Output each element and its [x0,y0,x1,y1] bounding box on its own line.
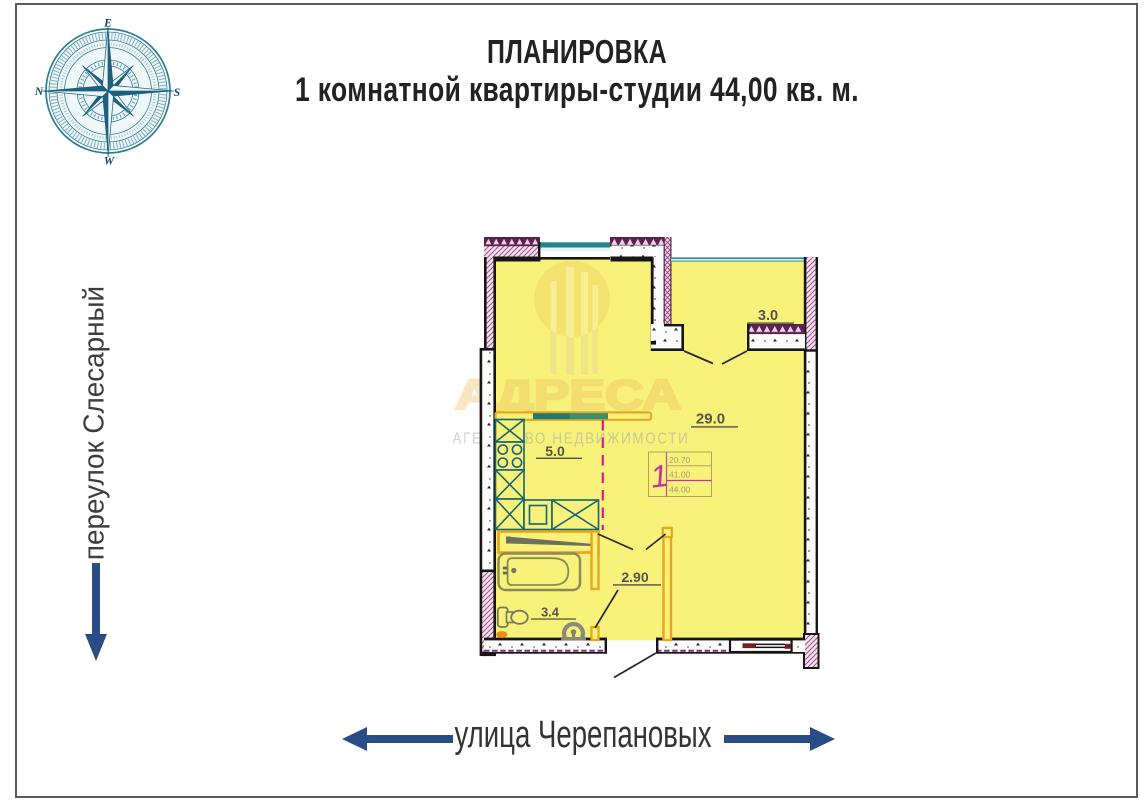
svg-text:20.70: 20.70 [669,455,691,465]
svg-text:N: N [34,86,44,98]
svg-text:3.0: 3.0 [758,308,778,324]
svg-text:44.00: 44.00 [669,485,691,495]
svg-text:2.90: 2.90 [621,569,648,585]
svg-text:5.0: 5.0 [545,443,565,459]
svg-text:E: E [103,18,112,30]
svg-text:W: W [104,156,115,168]
svg-text:29.0: 29.0 [696,411,725,428]
svg-text:41.00: 41.00 [669,470,691,480]
svg-text:3.4: 3.4 [541,605,560,620]
